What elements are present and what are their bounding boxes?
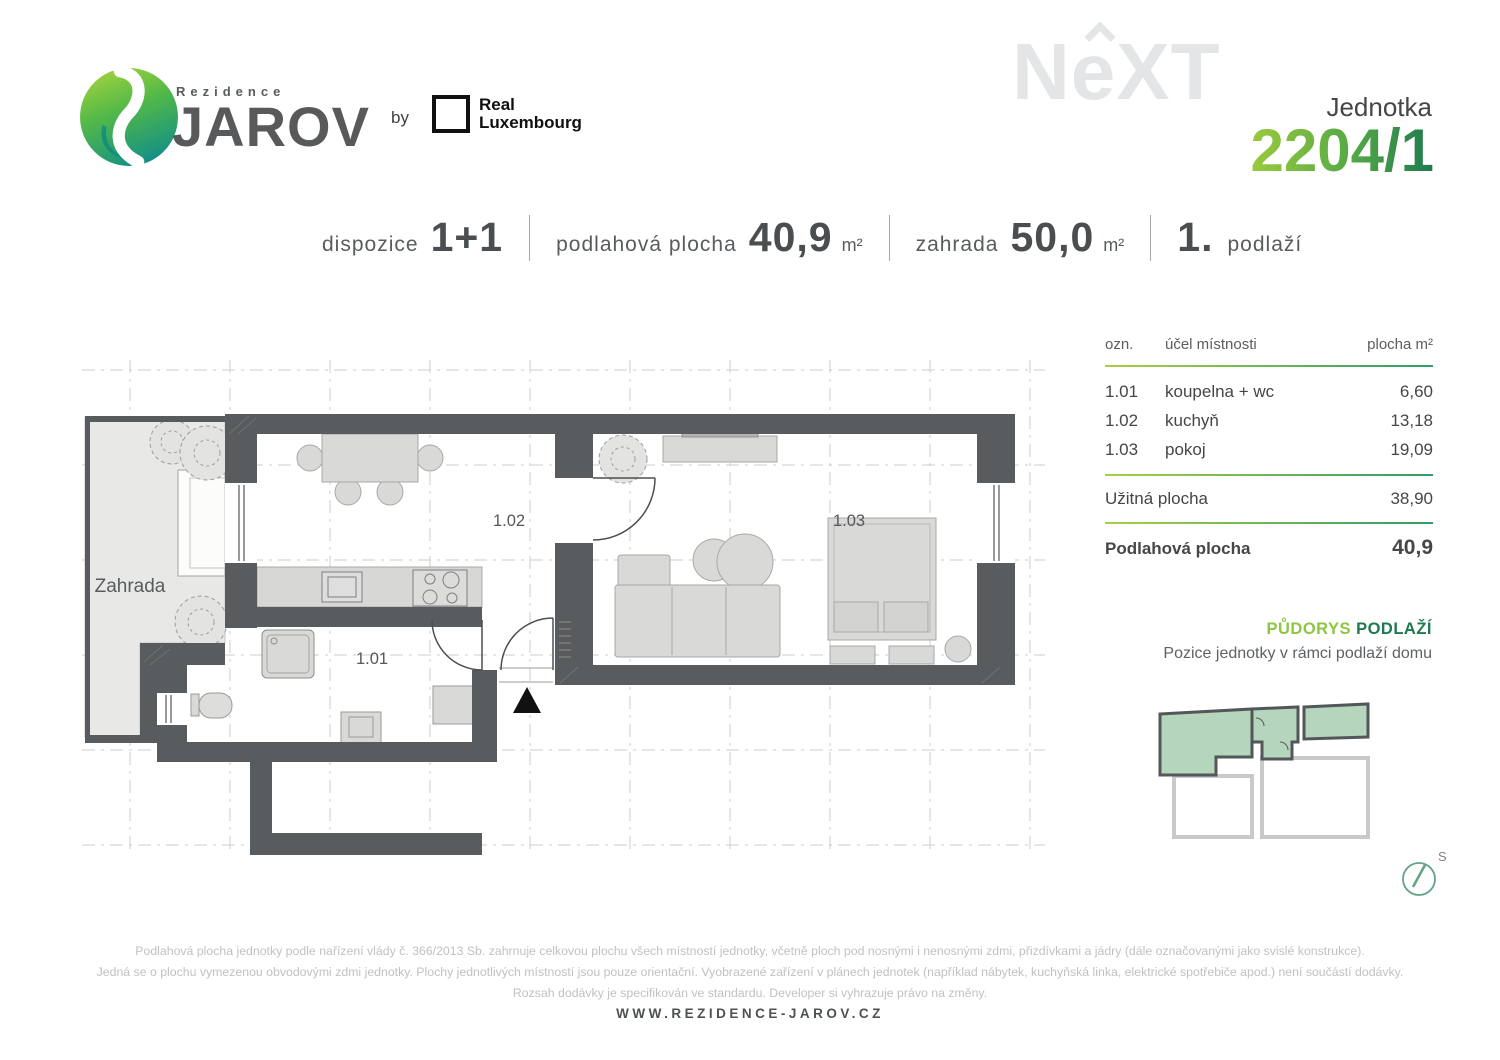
spec-podlazi-label: podlaží [1227, 233, 1302, 257]
spec-divider [529, 215, 530, 261]
spec-zahrada-unit: m² [1103, 235, 1124, 256]
spec-dispozice-label: dispozice [322, 233, 419, 257]
spec-divider [1150, 215, 1151, 261]
room-table-header: ozn. účel místnosti plocha m² [1105, 336, 1433, 365]
row-area: 13,18 [1363, 411, 1433, 431]
row-id: 1.03 [1105, 440, 1165, 460]
row-area: 6,60 [1363, 382, 1433, 402]
spec-dispozice-value: 1+1 [431, 214, 504, 261]
col-ucel: účel místnosti [1165, 336, 1363, 353]
spec-plocha-label: podlahová plocha [556, 233, 737, 257]
table-row: 1.02 kuchyň 13,18 [1105, 406, 1433, 435]
total-value: 40,9 [1363, 536, 1433, 560]
bathroom-fixtures [191, 616, 473, 744]
entrance-threshold [499, 668, 553, 682]
partner-name-line2: Luxembourg [479, 113, 582, 132]
spec-zahrada: zahrada 50,0 m² [916, 214, 1125, 261]
legal-disclaimer: Podlahová plocha jednotky podle nařízení… [50, 941, 1450, 1004]
spec-zahrada-label: zahrada [916, 233, 999, 257]
legal-line2: Jedná se o plochu vymezenou obvodovými z… [50, 962, 1450, 983]
partner-name-line1: Real [479, 95, 515, 114]
dining-set [297, 434, 443, 505]
brochure-page: Rezidence JAROV by Real Luxembourg NeXT … [0, 0, 1500, 1060]
row-name: pokoj [1165, 440, 1363, 460]
table-row: 1.03 pokoj 19,09 [1105, 435, 1433, 464]
col-ozn: ozn. [1105, 336, 1165, 353]
entrance-arrow-icon [513, 687, 541, 713]
livingroom-furniture [615, 431, 971, 664]
minimap-subtitle: Pozice jednotky v rámci podlaží domu [1163, 645, 1432, 663]
minimap-title: PŮDORYS PODLAŽÍ [1266, 620, 1432, 639]
row-area: 19,09 [1363, 440, 1433, 460]
room-label-101: 1.01 [356, 650, 388, 668]
spec-plocha: podlahová plocha 40,9 m² [556, 214, 862, 261]
compass-icon: S [1394, 846, 1452, 904]
spec-plocha-value: 40,9 [749, 214, 833, 261]
spec-plocha-unit: m² [842, 235, 863, 256]
spec-zahrada-value: 50,0 [1010, 214, 1094, 261]
spec-podlazi-value: 1. [1177, 214, 1213, 261]
floor-plan: Zahrada 1.01 1.02 1.03 [78, 356, 1050, 858]
room-table: ozn. účel místnosti plocha m² 1.01 koupe… [1105, 336, 1433, 572]
garden-terrace [178, 470, 225, 576]
garden-label: Zahrada [95, 576, 166, 597]
unit-number: 2204/1 [1250, 116, 1434, 185]
legal-line3: Rozsah dodávky je specifikován ve standa… [50, 983, 1450, 1004]
specs-row: dispozice 1+1 podlahová plocha 40,9 m² z… [322, 214, 1302, 261]
table-row: 1.01 koupelna + wc 6,60 [1105, 377, 1433, 406]
row-id: 1.02 [1105, 411, 1165, 431]
subtotal-value: 38,90 [1363, 489, 1433, 509]
next-watermark: NeXT [1012, 26, 1221, 118]
by-label: by [391, 108, 409, 128]
minimap-title-word1: PŮDORYS [1266, 620, 1351, 638]
partner-logo: Real Luxembourg [432, 95, 582, 133]
spec-divider [889, 215, 890, 261]
jarov-logo-icon [78, 66, 180, 168]
kitchen-counter [257, 567, 482, 607]
compass-north-label: S [1438, 849, 1447, 864]
table-total-row: Podlahová plocha 40,9 [1105, 524, 1433, 572]
row-id: 1.01 [1105, 382, 1165, 402]
row-name: kuchyň [1165, 411, 1363, 431]
col-plocha: plocha m² [1363, 336, 1433, 353]
subtotal-label: Užitná plocha [1105, 489, 1363, 509]
spec-dispozice: dispozice 1+1 [322, 214, 503, 261]
room-label-103: 1.03 [833, 512, 865, 530]
next-watermark-text: NeXT [1012, 27, 1221, 116]
spec-podlazi: 1. podlaží [1177, 214, 1302, 261]
partner-square-icon [432, 95, 470, 133]
legal-line1: Podlahová plocha jednotky podle nařízení… [50, 941, 1450, 962]
partner-name: Real Luxembourg [479, 96, 582, 132]
floor-position-minimap [1152, 698, 1382, 846]
total-label: Podlahová plocha [1105, 539, 1363, 559]
table-subtotal-row: Užitná plocha 38,90 [1105, 476, 1433, 522]
row-name: koupelna + wc [1165, 382, 1363, 402]
minimap-title-word2: PODLAŽÍ [1356, 620, 1432, 638]
room-label-102: 1.02 [493, 512, 525, 530]
website-url: WWW.REZIDENCE-JAROV.CZ [0, 1006, 1500, 1021]
brand-name: JAROV [172, 94, 370, 159]
